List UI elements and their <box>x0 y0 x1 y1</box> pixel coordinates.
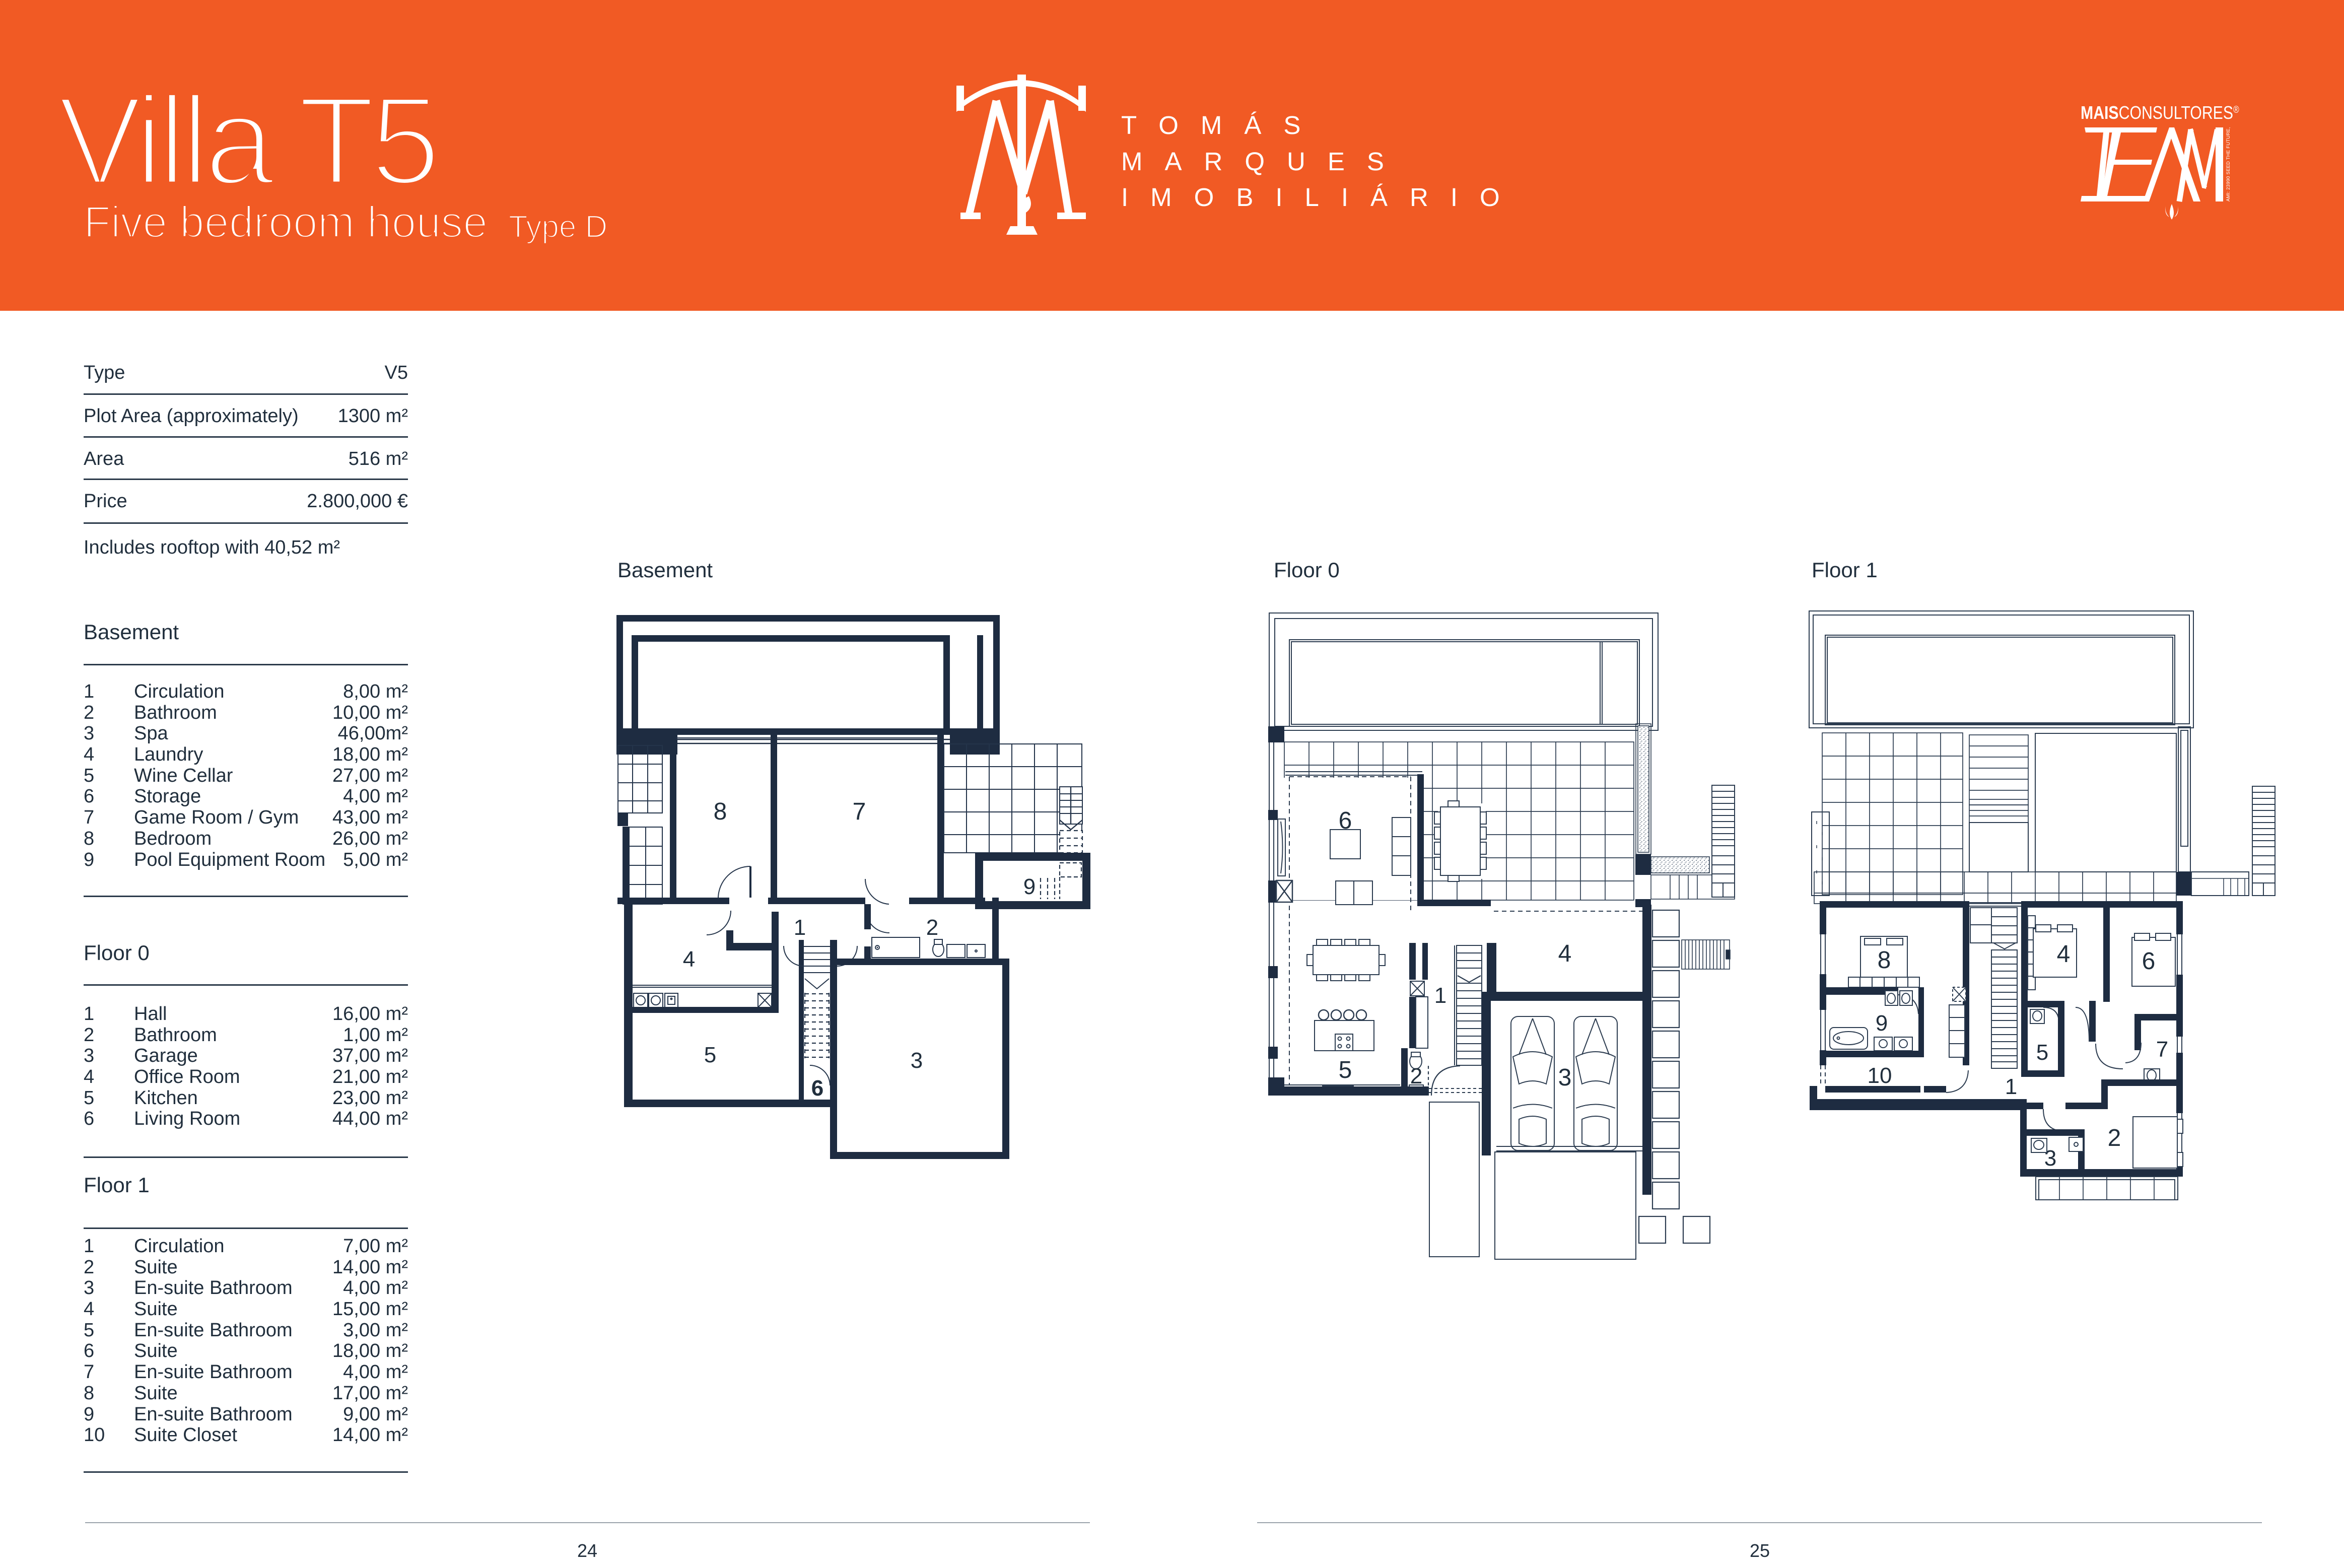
svg-text:2: 2 <box>2108 1125 2121 1151</box>
svg-text:9: 9 <box>1023 874 1036 899</box>
svg-text:6: 6 <box>811 1076 823 1101</box>
svg-text:7: 7 <box>2156 1037 2168 1062</box>
svg-text:1: 1 <box>1434 983 1446 1008</box>
svg-text:5: 5 <box>2036 1040 2048 1065</box>
svg-text:3: 3 <box>911 1048 923 1073</box>
svg-text:2: 2 <box>926 915 938 940</box>
svg-text:5: 5 <box>1339 1057 1352 1083</box>
svg-text:4: 4 <box>683 947 695 972</box>
svg-text:10: 10 <box>1868 1063 1892 1088</box>
svg-text:AMI: 23990 SEED THE FUTURE, L: AMI: 23990 SEED THE FUTURE, LDA. <box>2226 127 2231 201</box>
svg-text:5: 5 <box>704 1043 716 1067</box>
svg-text:3: 3 <box>1558 1064 1572 1091</box>
svg-text:8: 8 <box>1878 947 1891 974</box>
svg-text:1: 1 <box>2005 1074 2017 1099</box>
svg-text:7: 7 <box>853 798 866 825</box>
svg-text:1: 1 <box>794 915 806 940</box>
svg-text:4: 4 <box>1558 940 1572 967</box>
svg-text:9: 9 <box>1876 1011 1888 1036</box>
svg-text:4: 4 <box>2057 941 2071 968</box>
svg-text:8: 8 <box>714 798 727 825</box>
svg-text:2: 2 <box>1410 1064 1422 1088</box>
svg-text:6: 6 <box>2142 948 2156 975</box>
